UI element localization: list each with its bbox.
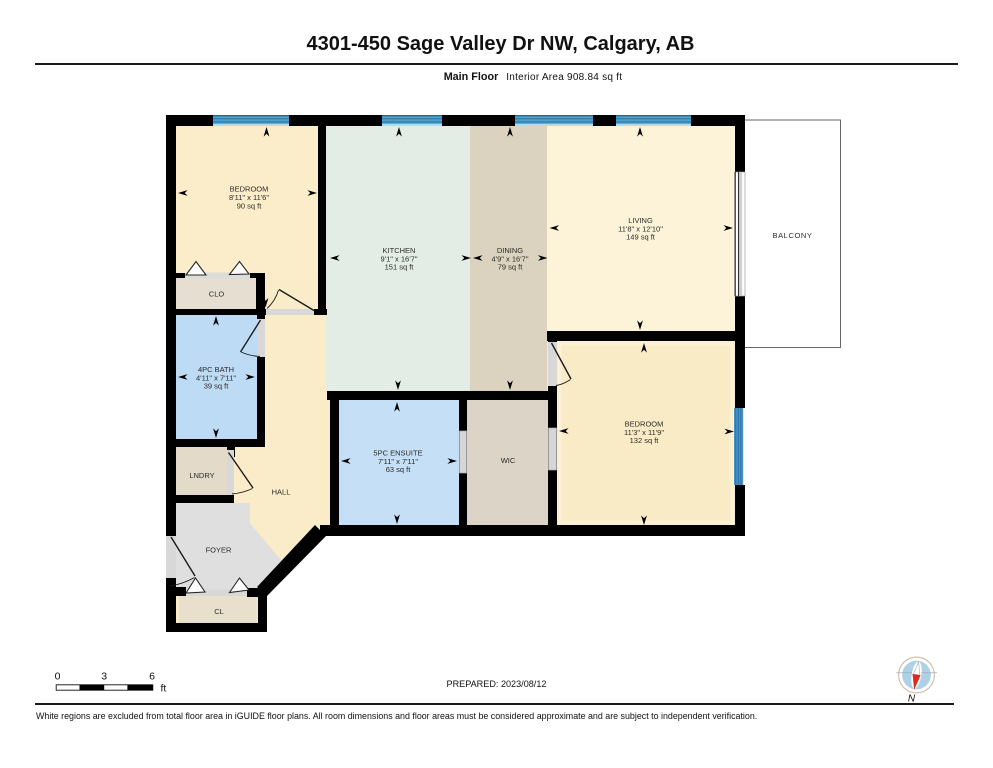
svg-text:FOYER: FOYER: [206, 546, 232, 555]
svg-text:BALCONY: BALCONY: [772, 231, 812, 240]
svg-text:151 sq ft: 151 sq ft: [385, 263, 415, 272]
svg-text:79 sq ft: 79 sq ft: [498, 263, 524, 272]
svg-text:LNDRY: LNDRY: [189, 471, 214, 480]
svg-text:HALL: HALL: [272, 487, 291, 496]
svg-text:WIC: WIC: [501, 456, 516, 465]
svg-text:90 sq ft: 90 sq ft: [237, 201, 263, 210]
svg-text:132 sq ft: 132 sq ft: [630, 436, 660, 445]
svg-text:149 sq ft: 149 sq ft: [626, 233, 656, 242]
svg-text:CL: CL: [214, 607, 224, 616]
svg-text:CLO: CLO: [209, 289, 225, 298]
svg-text:63 sq ft: 63 sq ft: [386, 465, 412, 474]
svg-text:39 sq ft: 39 sq ft: [204, 382, 230, 391]
